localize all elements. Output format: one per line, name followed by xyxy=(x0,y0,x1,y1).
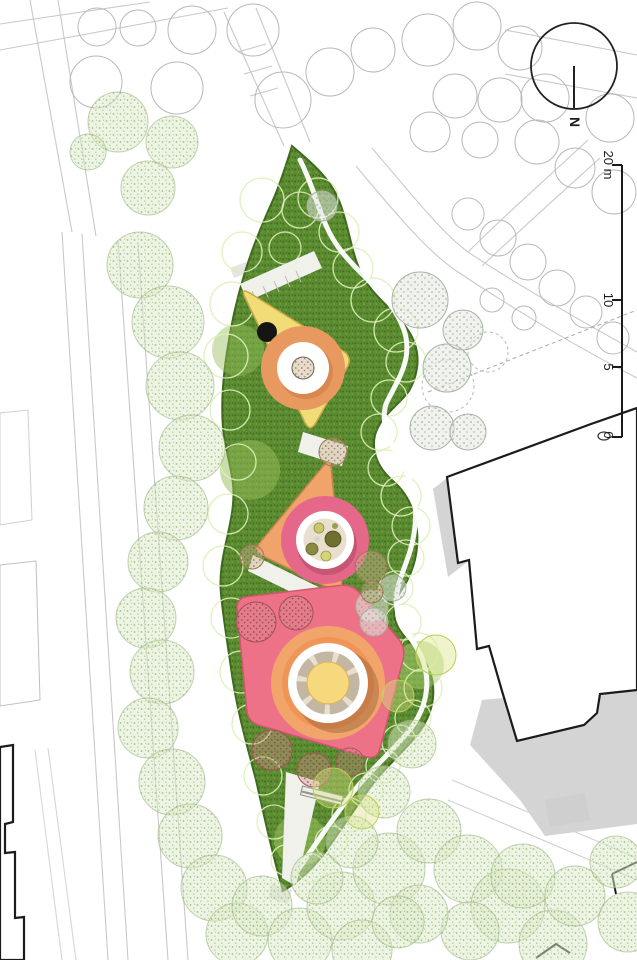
scale-label-0: 0 xyxy=(601,431,616,438)
scale-bar: 20 m 10 5 0 xyxy=(601,151,622,439)
context-building-outlines xyxy=(0,410,40,706)
scale-label-10: 10 xyxy=(601,293,616,307)
center-tree xyxy=(292,357,314,379)
north-label: N xyxy=(567,117,583,127)
center-circle-yellow xyxy=(307,662,349,704)
north-arrow: N xyxy=(531,23,617,127)
scale-label-5: 5 xyxy=(601,363,616,370)
scale-label-20m: 20 m xyxy=(601,151,616,180)
site-plan-drawing: N 20 m 10 5 0 xyxy=(0,0,637,960)
building-right xyxy=(447,408,637,741)
building-left-bottom xyxy=(0,745,24,960)
site-plan-page: N 20 m 10 5 0 xyxy=(0,0,637,960)
